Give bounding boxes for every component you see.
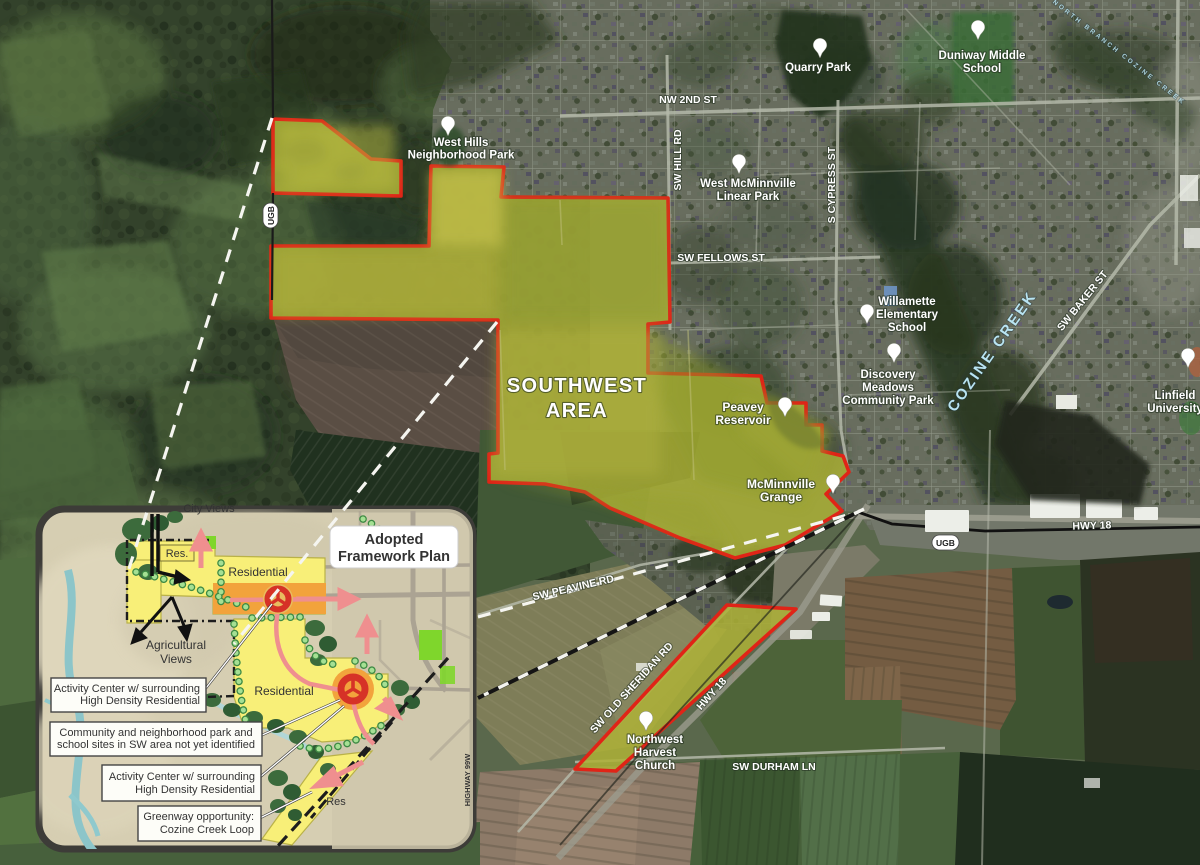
svg-text:UGB: UGB (266, 206, 276, 225)
svg-text:Cozine Creek Loop: Cozine Creek Loop (160, 824, 254, 836)
svg-text:High Density Residential: High Density Residential (80, 695, 200, 707)
svg-text:Activity Center w/ surrounding: Activity Center w/ surrounding (54, 683, 200, 695)
svg-text:Discovery: Discovery (861, 369, 917, 381)
svg-text:Neighborhood Park: Neighborhood Park (408, 150, 515, 162)
svg-text:HWY 18: HWY 18 (1072, 519, 1111, 532)
svg-text:Northwest: Northwest (627, 734, 683, 746)
svg-text:Res.: Res. (166, 548, 189, 560)
svg-text:Quarry Park: Quarry Park (785, 62, 851, 74)
svg-text:Grange: Grange (760, 490, 802, 504)
svg-text:School: School (963, 63, 1001, 75)
svg-text:Views: Views (160, 652, 192, 666)
svg-text:S CYPRESS ST: S CYPRESS ST (826, 146, 838, 223)
svg-text:Greenway opportunity:: Greenway opportunity: (143, 811, 254, 823)
svg-text:school sites in SW area not ye: school sites in SW area not yet identifi… (57, 739, 255, 751)
svg-text:Linear Park: Linear Park (717, 191, 780, 203)
svg-text:SW DURHAM LN: SW DURHAM LN (732, 761, 815, 773)
svg-text:Community Park: Community Park (842, 395, 934, 407)
svg-text:Linfield: Linfield (1155, 390, 1196, 402)
svg-text:Community and neighborhood par: Community and neighborhood park and (59, 727, 252, 739)
svg-text:Elementary: Elementary (876, 309, 939, 321)
svg-text:SW FELLOWS ST: SW FELLOWS ST (677, 252, 765, 264)
svg-text:Duniway Middle: Duniway Middle (939, 50, 1026, 62)
svg-text:Res: Res (326, 796, 346, 808)
svg-text:Framework Plan: Framework Plan (338, 549, 450, 565)
svg-text:NW 2ND ST: NW 2ND ST (659, 94, 717, 106)
svg-text:Willamette: Willamette (878, 296, 935, 308)
svg-text:West McMinnville: West McMinnville (700, 178, 796, 190)
svg-text:Activity Center w/ surrounding: Activity Center w/ surrounding (109, 771, 255, 783)
svg-text:Reservoir: Reservoir (715, 413, 771, 427)
svg-text:SW HILL RD: SW HILL RD (672, 129, 684, 190)
svg-text:Harvest: Harvest (634, 747, 676, 759)
svg-text:Residential: Residential (228, 565, 287, 579)
svg-text:West Hills: West Hills (434, 137, 489, 149)
svg-text:University: University (1147, 403, 1200, 415)
svg-text:Agricultural: Agricultural (146, 638, 206, 652)
svg-text:McMinnville: McMinnville (747, 477, 815, 491)
svg-text:SOUTHWEST: SOUTHWEST (507, 375, 647, 397)
svg-text:Residential: Residential (254, 684, 313, 698)
svg-text:Peavey: Peavey (722, 400, 764, 414)
svg-text:School: School (888, 322, 926, 334)
svg-text:Church: Church (635, 760, 675, 772)
svg-text:UGB: UGB (936, 538, 955, 548)
svg-text:AREA: AREA (546, 400, 608, 422)
svg-text:Adopted: Adopted (365, 532, 424, 548)
svg-text:City Views: City Views (183, 503, 235, 515)
svg-text:Meadows: Meadows (862, 382, 914, 394)
svg-text:High Density Residential: High Density Residential (135, 784, 255, 796)
svg-text:HIGHWAY 99W: HIGHWAY 99W (463, 753, 472, 806)
